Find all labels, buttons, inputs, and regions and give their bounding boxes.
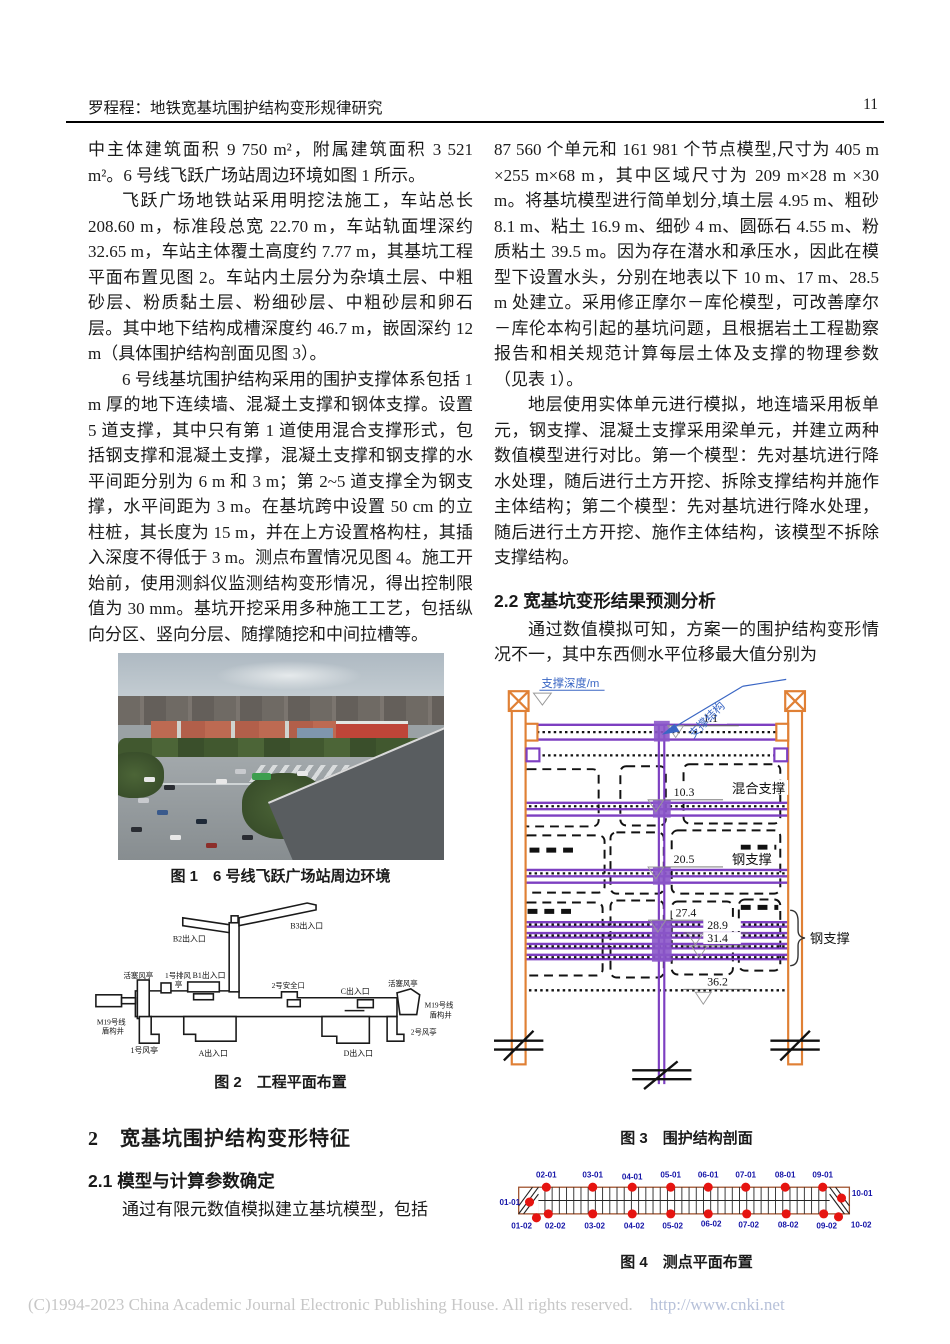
corridor	[229, 923, 239, 992]
fig4-label: 05-02	[662, 1221, 683, 1230]
fig2-label-m19-left-2: 盾构井	[102, 1026, 124, 1035]
fig2-label-b2: B2出入口	[173, 934, 206, 944]
support-leader-line	[743, 679, 786, 686]
fig4-label: 01-01	[499, 1197, 520, 1206]
figure1-photo	[118, 653, 444, 860]
running-head: 罗程程：地铁宽基坑围护结构变形规律研究 11	[88, 96, 878, 118]
break-symbol-center	[644, 1061, 678, 1089]
fig2-label-a: A出入口	[199, 1048, 228, 1058]
figure4-diagram: 02-01 03-01 04-01 05-01 06-01 07-01 08-0…	[494, 1162, 879, 1246]
right-paragraph-1: 87 560 个单元和 161 981 个节点模型,尺寸为 405 m ×255…	[494, 137, 879, 392]
monitor-point	[781, 1182, 790, 1191]
fig3-mixed-support-label: 混合支撑	[732, 780, 785, 795]
b1-inner-rect	[194, 994, 214, 1000]
monitor-point	[819, 1209, 828, 1218]
b1-entrance-block	[188, 982, 220, 992]
fig3-depth-axis-label: 支撑深度/m	[541, 677, 599, 690]
fig4-label: 10-02	[851, 1220, 872, 1229]
exhaust-shaft	[161, 983, 171, 993]
fig3-depth-6: 31.4	[707, 930, 728, 944]
footer: (C)1994-2023 China Academic Journal Elec…	[28, 1295, 928, 1315]
waler-square-left	[527, 748, 540, 761]
monitor-point	[742, 1209, 751, 1218]
left-column: 中主体建筑面积 9 750 m²，附属建筑面积 3 521 m²。6 号线飞跃广…	[88, 137, 473, 1223]
fig4-label: 08-02	[778, 1220, 799, 1229]
corridor-tab	[231, 916, 238, 923]
photo-car	[235, 769, 246, 774]
monitor-point	[628, 1182, 637, 1191]
fig2-label-fan1: 1号风亭	[130, 1045, 158, 1055]
fan1-leg	[139, 1017, 159, 1044]
left-paragraph-4: 通过有限元数值模拟建立基坑模型，包括	[88, 1197, 473, 1223]
figure3-diagram: 1.1 10.3 20.5 27.4 28.9 31.4 36.2 混合支撑 钢…	[494, 677, 879, 1122]
photo-bus	[252, 773, 271, 780]
monitor-point	[532, 1213, 541, 1222]
datum-triangle	[695, 992, 711, 1004]
c-entrance-box	[358, 1000, 374, 1008]
right-column: 87 560 个单元和 161 981 个节点模型,尺寸为 405 m ×255…	[494, 137, 879, 1272]
d-entrance-leg	[322, 1017, 369, 1044]
fig3-steel-support-lower-label: 钢支撑	[810, 930, 850, 945]
photo-car	[216, 779, 227, 784]
left-neck	[122, 998, 136, 1004]
fig4-label: 06-01	[698, 1170, 719, 1179]
fig3-depth-2: 10.3	[674, 784, 695, 798]
left-paragraph-2: 飞跃广场地铁站采用明挖法施工，车站总长 208.60 m，标准段总宽 22.70…	[88, 188, 473, 367]
arm-left	[183, 918, 229, 933]
fig2-label-safety2: 2号安全口	[272, 981, 305, 990]
fig2-label-b1: B1出入口	[193, 970, 226, 980]
figure4-caption: 图 4 测点平面布置	[494, 1251, 879, 1272]
fig4-label: 05-01	[660, 1170, 681, 1179]
left-paragraph-1: 中主体建筑面积 9 750 m²，附属建筑面积 3 521 m²。6 号线飞跃广…	[88, 137, 473, 188]
photo-car	[242, 835, 253, 840]
fig2-label-fan2: 2号风亭	[411, 1027, 437, 1036]
fig4-label: 04-01	[622, 1172, 643, 1181]
fig2-label-exhaust-1: 1号排风	[165, 971, 191, 980]
fig4-label: 07-01	[735, 1170, 756, 1179]
left-paragraph-3: 6 号线基坑围护结构采用的围护支撑体系包括 1 m 厚的地下连续墙、混凝土支撑和…	[88, 367, 473, 648]
fig3-depth-7: 36.2	[707, 974, 728, 988]
paper-page: 罗程程：地铁宽基坑围护结构变形规律研究 11 中主体建筑面积 9 750 m²，…	[0, 0, 950, 1344]
diaphragm-wall-right	[788, 710, 802, 1063]
photo-car	[138, 798, 149, 803]
photo-tree-cluster	[118, 752, 164, 798]
photo-car	[297, 771, 308, 776]
monitor-point	[666, 1209, 675, 1218]
left-tall-shaft	[137, 980, 149, 1019]
fig2-label-c: C出入口	[341, 986, 370, 996]
fig4-label: 03-01	[582, 1170, 603, 1179]
fig4-label: 02-02	[545, 1221, 566, 1230]
waler-square-right	[774, 748, 787, 761]
figure1-caption: 图 1 6 号线飞跃广场站周边环境	[88, 865, 473, 886]
monitor-point	[588, 1182, 597, 1191]
fig2-label-exhaust-2: 亭	[175, 980, 182, 989]
left-end-shaft	[96, 995, 122, 1007]
fig2-label-d: D出入口	[344, 1048, 373, 1058]
photo-car	[206, 843, 217, 848]
photo-car	[170, 835, 181, 840]
fig4-label: 10-01	[852, 1189, 873, 1198]
strut-endblock-left	[526, 723, 538, 740]
running-title: 罗程程：地铁宽基坑围护结构变形规律研究	[88, 96, 383, 118]
monitor-point	[704, 1209, 713, 1218]
safety2-box	[287, 1000, 300, 1007]
monitor-point	[525, 1197, 534, 1206]
fig2-label-m19-left-1: M19号线	[97, 1017, 126, 1026]
strut-endblock-right	[776, 723, 788, 740]
right-pentagon-shaft	[397, 989, 420, 1015]
photo-car	[196, 819, 207, 824]
fig2-label-m19-right-1: M19号线	[425, 1001, 454, 1010]
fig2-label-b3: B3出入口	[290, 921, 323, 931]
fig4-label: 02-01	[536, 1170, 557, 1179]
depth-axis-triangle	[533, 693, 551, 705]
monitor-point	[628, 1209, 637, 1218]
monitor-point	[818, 1182, 827, 1191]
monitor-point	[666, 1182, 675, 1191]
figure3-caption: 图 3 围护结构剖面	[494, 1127, 879, 1148]
monitor-point	[544, 1209, 553, 1218]
footer-url: http://www.cnki.net	[650, 1295, 785, 1314]
footer-copyright: (C)1994-2023 China Academic Journal Elec…	[28, 1295, 633, 1314]
right-paragraph-2: 地层使用实体单元进行模拟，地连墙采用板单元，钢支撑、混凝土支撑采用梁单元，并建立…	[494, 392, 879, 571]
fig2-label-m19-right-2: 盾构井	[430, 1011, 452, 1020]
fig3-depth-4: 27.4	[676, 905, 697, 919]
photo-car	[144, 777, 155, 782]
fig4-label: 09-01	[812, 1170, 833, 1179]
fig2-label-piston-left: 活塞风亭	[124, 971, 154, 980]
monitor-point	[782, 1209, 791, 1218]
section-2-heading: 2 宽基坑围护结构变形特征	[88, 1122, 473, 1151]
fan2-leg	[387, 1017, 404, 1042]
fig4-label: 06-02	[701, 1219, 722, 1228]
photo-car	[164, 785, 175, 790]
monitor-point	[542, 1182, 551, 1191]
right-paragraph-3: 通过数值模拟可知，方案一的围护结构变形情况不一，其中东西侧水平位移最大值分别为	[494, 617, 879, 668]
figure2-diagram: B2出入口 B3出入口 活塞风亭 1号排风 亭 B1出入口 2号安全口 C出入口…	[88, 894, 473, 1066]
monitor-point	[837, 1193, 846, 1202]
monitor-point	[588, 1209, 597, 1218]
fig4-label: 08-01	[775, 1170, 796, 1179]
section-2-1-heading: 2.1 模型与计算参数确定	[88, 1168, 473, 1193]
fig3-depth-3: 20.5	[674, 851, 695, 865]
fig4-label: 03-02	[584, 1221, 605, 1230]
header-rule	[66, 121, 884, 123]
fig4-label: 09-02	[816, 1221, 837, 1230]
monitor-point	[704, 1182, 713, 1191]
photo-car	[157, 810, 168, 815]
fig2-label-piston-right: 活塞风亭	[388, 979, 418, 988]
section-2-2-heading: 2.2 宽基坑变形结果预测分析	[494, 588, 879, 613]
photo-car	[131, 827, 142, 832]
fig3-steel-support-label: 钢支撑	[732, 851, 772, 866]
monitor-point	[741, 1182, 750, 1191]
page-number: 11	[863, 96, 878, 118]
excavation-box	[522, 769, 599, 826]
excavation-box	[522, 835, 605, 892]
fig4-label: 01-02	[511, 1221, 532, 1230]
diaphragm-wall-left	[512, 710, 526, 1063]
figure2-caption: 图 2 工程平面布置	[88, 1071, 473, 1092]
a-entrance-leg	[184, 1017, 236, 1042]
fig4-label: 04-02	[624, 1221, 645, 1230]
monitor-point	[834, 1212, 843, 1221]
fig4-label: 07-02	[738, 1220, 759, 1229]
